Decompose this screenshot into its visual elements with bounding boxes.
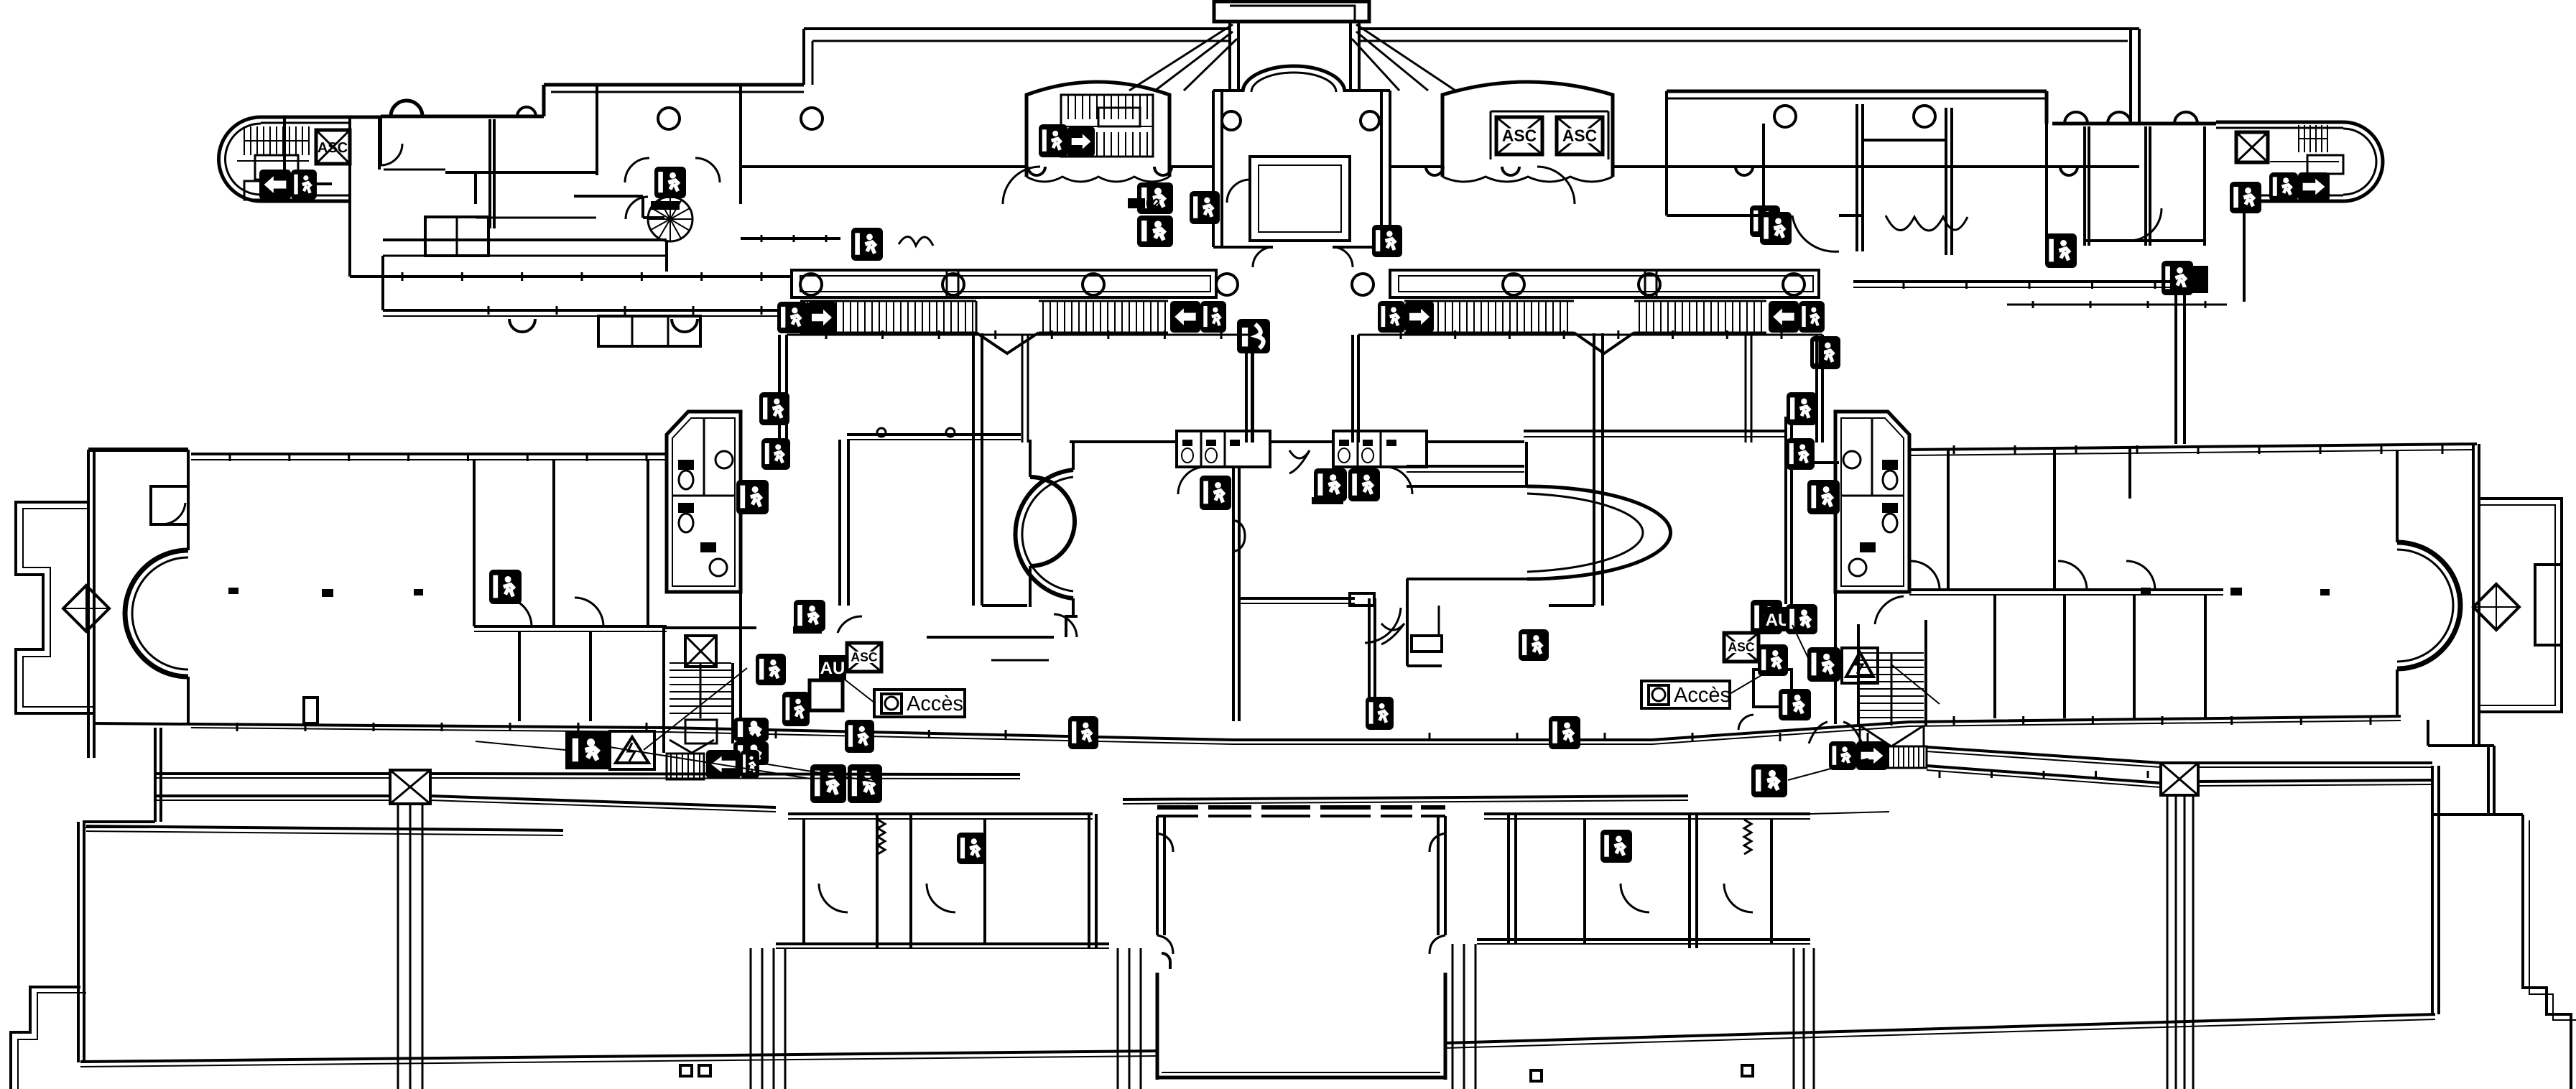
svg-text:Accès: Accès	[907, 692, 963, 715]
svg-text:ASC: ASC	[1562, 126, 1597, 144]
svg-text:Accès: Accès	[1674, 684, 1731, 707]
svg-text:ASC: ASC	[318, 140, 348, 156]
svg-text:ASC: ASC	[1728, 640, 1754, 654]
svg-text:C02: C02	[1136, 196, 1160, 210]
svg-text:ASC: ASC	[851, 650, 877, 664]
svg-text:ASC: ASC	[1502, 126, 1537, 144]
svg-text:AU: AU	[820, 659, 845, 678]
